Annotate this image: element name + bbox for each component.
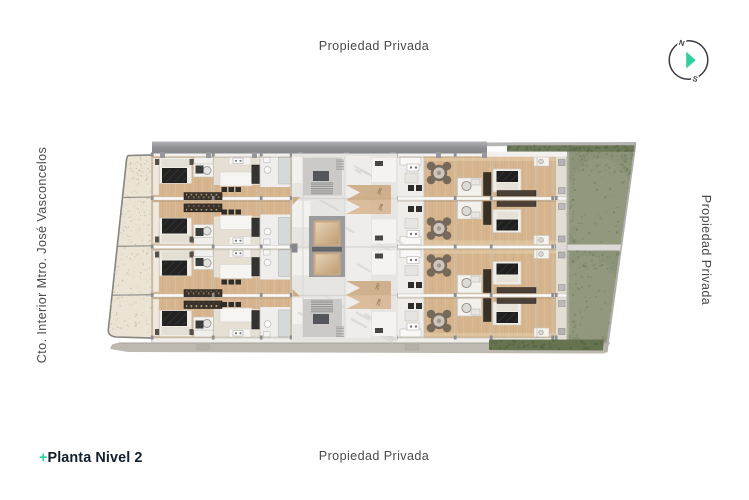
svg-text:Cto. Interior Mtro. José Vasco: Cto. Interior Mtro. José Vasconcelos (35, 147, 49, 363)
svg-text:Propiedad Privada: Propiedad Privada (699, 195, 713, 305)
svg-text:Propiedad Privada: Propiedad Privada (319, 449, 429, 463)
svg-text:+Planta Nivel 2: +Planta Nivel 2 (39, 450, 143, 466)
svg-text:Propiedad Privada: Propiedad Privada (319, 39, 429, 53)
